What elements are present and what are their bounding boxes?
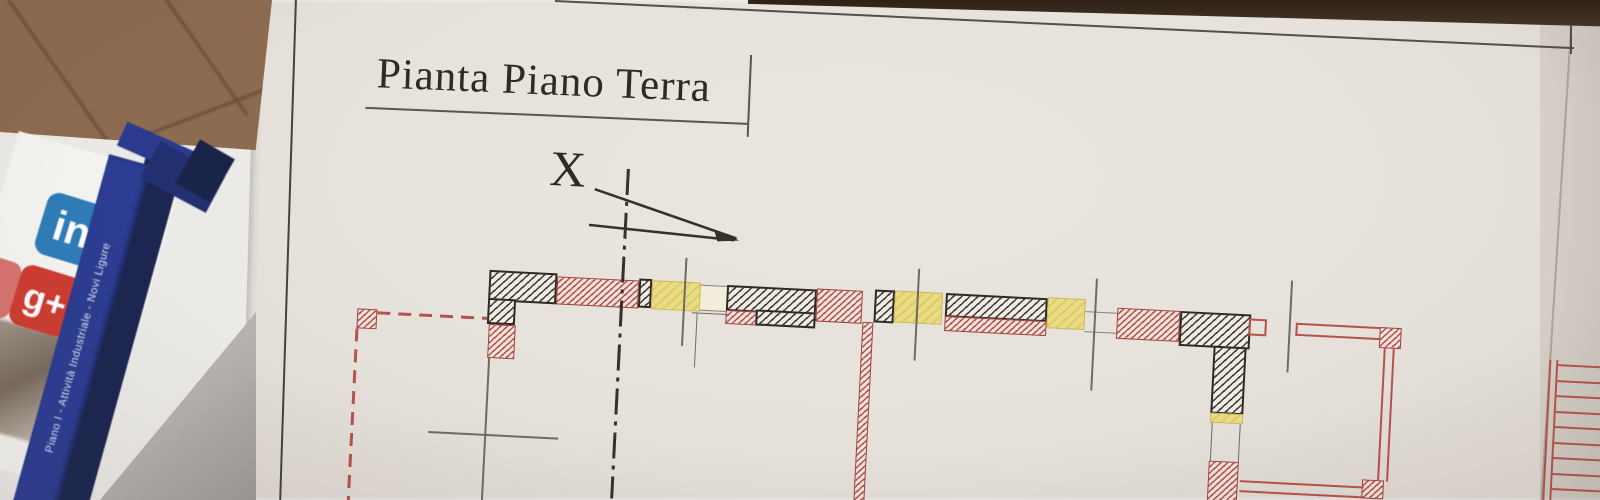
window-opening-1 [700, 285, 727, 312]
demolition-dashed-line-h [377, 311, 487, 319]
wall-existing-corner-leg [487, 298, 516, 325]
brochure-stack: in g+ Piano I - Attività Industriale - N… [0, 0, 300, 500]
stair-tread [1553, 457, 1600, 463]
section-label: X [548, 139, 587, 199]
wall-new-seg2 [815, 289, 863, 324]
new-wall-bottom [1239, 480, 1363, 498]
wall-new-seg1 [556, 276, 639, 308]
photo-of-floor-plan: Pianta Piano Terra X in g+ Piano I - Att… [0, 0, 1600, 500]
wall-new-vertical [850, 322, 873, 500]
stair-tread [1557, 395, 1600, 401]
stair-tread [1554, 442, 1600, 448]
stair-tread [1558, 364, 1600, 370]
wall-demolition-seg3 [1046, 297, 1086, 330]
wall-demolition-seg1 [651, 280, 701, 311]
stair-tread [1557, 380, 1600, 386]
new-wall-corner-br [1361, 479, 1384, 499]
stair-tread [1552, 488, 1600, 494]
door-opening-vertical [1210, 423, 1241, 462]
stair-tread [1556, 411, 1600, 417]
axis-cross-line [428, 431, 558, 440]
axis-line [1286, 281, 1293, 373]
section-cut-arrow-icon [586, 181, 754, 261]
demolition-corner-square [356, 308, 377, 329]
demolition-dashed-line-v [345, 328, 358, 500]
new-wall-top [1295, 323, 1388, 341]
axis-line [694, 312, 698, 367]
pillar-outline-red [1248, 318, 1267, 336]
axis-line [480, 358, 490, 500]
new-wall-right [1377, 348, 1395, 481]
wall-new-below-corner [487, 324, 516, 359]
wall-existing-seg3 [873, 289, 895, 323]
stair-stringer [1539, 360, 1559, 500]
new-wall-corner-tr [1379, 327, 1402, 349]
axis-line [1090, 279, 1098, 391]
wall-existing-step [755, 309, 816, 328]
wall-existing-corner2-top [1179, 311, 1252, 350]
wall-new-seg3 [1116, 308, 1180, 342]
floor-plan-drawing: X [272, 0, 1600, 500]
wall-existing-corner2-leg [1210, 346, 1246, 416]
wall-new-below-door [1205, 461, 1239, 500]
stair-tread [1555, 426, 1600, 432]
window-opening-2 [1084, 311, 1117, 334]
stair-tread [1553, 472, 1600, 478]
